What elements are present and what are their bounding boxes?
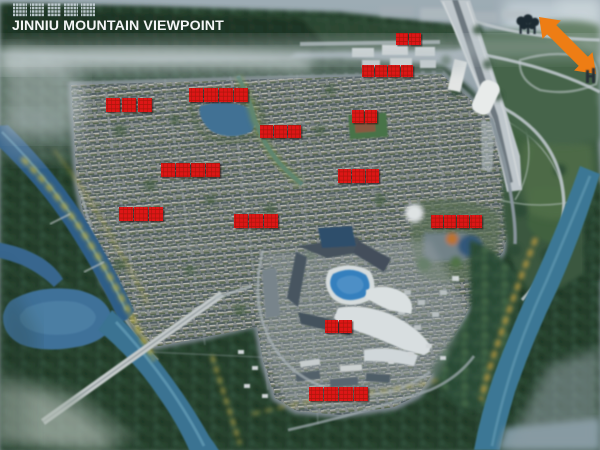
svg-text:JINNIU MOUNTAIN VIEWPOINT: JINNIU MOUNTAIN VIEWPOINT — [12, 18, 224, 34]
